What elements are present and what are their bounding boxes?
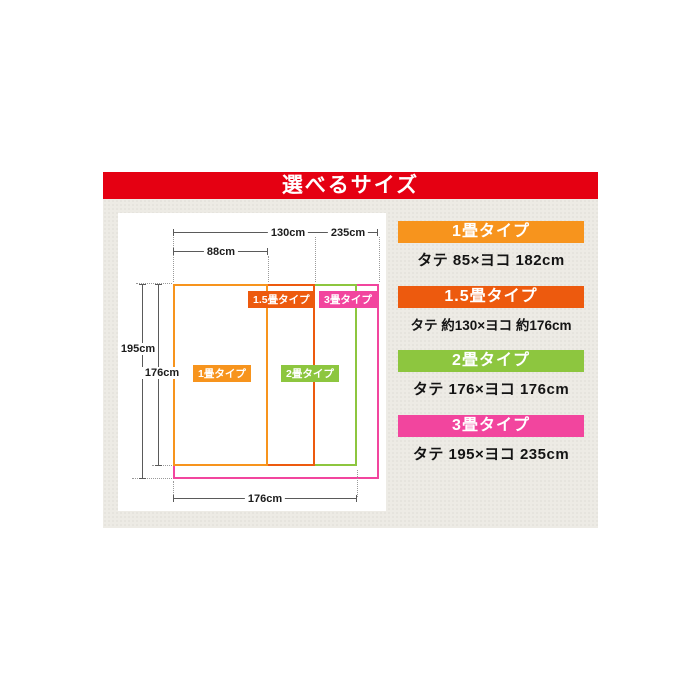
size-item-spec: タテ 85×ヨコ 182cm (398, 249, 584, 270)
dotted-guide (315, 237, 316, 282)
size-item-header: 1畳タイプ (398, 221, 584, 243)
dimension-line-195 (142, 284, 143, 479)
product-size-infographic: 選べるサイズ 1畳タイプ 1.5畳タイプ 2畳タイプ 3畳タイプ 130cm 2… (0, 0, 700, 700)
badge-3tatami: 3畳タイプ (319, 291, 377, 308)
size-item-spec: タテ 195×ヨコ 235cm (398, 443, 584, 464)
badge-1tatami: 1畳タイプ (193, 365, 251, 382)
badge-2tatami: 2畳タイプ (281, 365, 339, 382)
size-list: 1畳タイプ タテ 85×ヨコ 182cm 1.5畳タイプ タテ 約130×ヨコ … (398, 221, 584, 480)
dim-label-176cm-left: 176cm (142, 367, 182, 379)
dim-label-195cm: 195cm (118, 343, 158, 355)
dim-label-176cm-bottom: 176cm (245, 493, 285, 505)
size-diagram-panel: 1畳タイプ 1.5畳タイプ 2畳タイプ 3畳タイプ 130cm 235cm 88… (118, 213, 386, 511)
header-banner: 選べるサイズ (103, 172, 598, 199)
size-item-spec: タテ 約130×ヨコ 約176cm (398, 314, 584, 334)
size-item-2tatami: 2畳タイプ タテ 176×ヨコ 176cm (398, 350, 584, 399)
dotted-guide (268, 256, 269, 282)
size-item-1-5tatami: 1.5畳タイプ タテ 約130×ヨコ 約176cm (398, 286, 584, 334)
dim-label-235cm: 235cm (328, 227, 368, 239)
size-item-spec: タテ 176×ヨコ 176cm (398, 378, 584, 399)
content-block: 選べるサイズ 1畳タイプ 1.5畳タイプ 2畳タイプ 3畳タイプ 130cm 2… (103, 172, 598, 528)
size-item-header: 1.5畳タイプ (398, 286, 584, 308)
size-item-header: 3畳タイプ (398, 415, 584, 437)
dim-label-88cm: 88cm (204, 246, 238, 258)
badge-1-5tatami: 1.5畳タイプ (248, 291, 315, 308)
dotted-guide (357, 470, 358, 497)
size-item-3tatami: 3畳タイプ タテ 195×ヨコ 235cm (398, 415, 584, 464)
dotted-guide (379, 237, 380, 282)
dotted-guide (132, 478, 172, 479)
dim-label-130cm: 130cm (268, 227, 308, 239)
size-item-1tatami: 1畳タイプ タテ 85×ヨコ 182cm (398, 221, 584, 270)
page-title: 選べるサイズ (282, 172, 419, 199)
size-item-header: 2畳タイプ (398, 350, 584, 372)
textured-background: 1畳タイプ 1.5畳タイプ 2畳タイプ 3畳タイプ 130cm 235cm 88… (103, 199, 598, 528)
dotted-guide (173, 237, 174, 282)
